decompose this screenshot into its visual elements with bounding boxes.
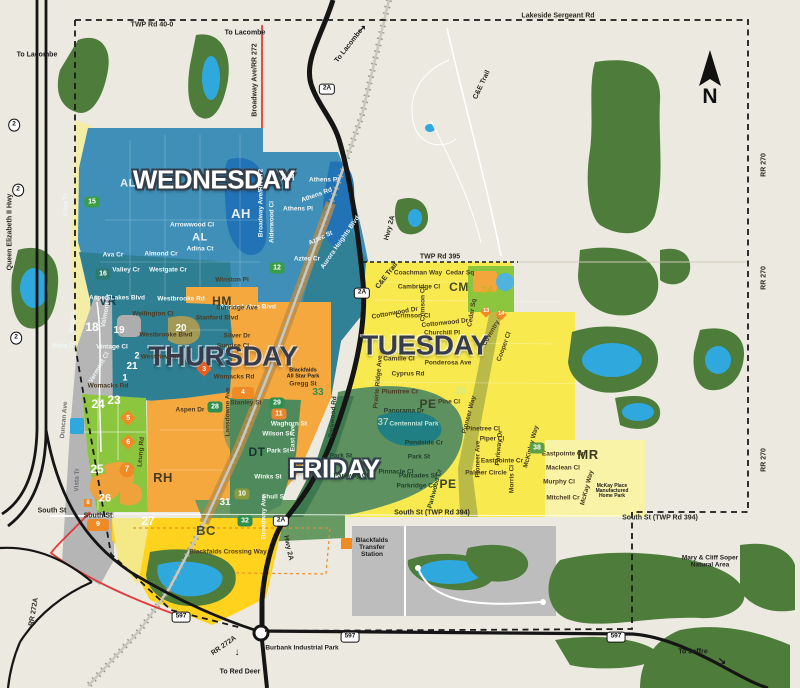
map-badge: 2: [134, 351, 139, 360]
street-label: East Ave: [291, 425, 298, 452]
map-badge: 38: [530, 443, 545, 454]
day-zone-label: WEDNESDAY: [133, 166, 295, 193]
road-label: Queen Elizabeth II Hwy: [6, 194, 13, 271]
road-label: Lakeside Sergeant Rd: [521, 12, 594, 19]
street-label: Park St: [408, 455, 430, 462]
map-badge: 25: [90, 463, 103, 475]
road-label: South St (TWP Rd 394): [394, 509, 470, 516]
street-label: McKay Way: [580, 470, 596, 506]
direction-label: To Red Deer: [220, 668, 261, 675]
street-label: Vintage Cl: [96, 345, 128, 352]
street-label: Mitchell Cr: [546, 496, 579, 503]
road-label: TWP Rd 40-0: [131, 21, 174, 28]
street-label: Womacks Rd: [88, 384, 129, 391]
highway-shield: 2A: [319, 84, 335, 95]
street-label: Wilson St: [262, 432, 292, 439]
street-label: Almond Cr: [144, 252, 177, 259]
poi-label: Blackfalds All Star Park: [287, 368, 320, 379]
highway-shield: 597: [341, 632, 360, 643]
street-label: Coachman Way: [394, 271, 442, 278]
map-badge: 27: [141, 515, 154, 527]
road-label: C&E Trail: [472, 69, 492, 100]
street-label: Aztec Cr: [294, 257, 320, 264]
street-label: Cooper Cl: [497, 331, 514, 362]
street-label: Parkwood Rd: [329, 396, 339, 438]
street-label: Eastpointe Cr: [481, 459, 523, 466]
street-label: Cyprus Rd: [392, 372, 425, 379]
map-badge: 37: [377, 418, 388, 428]
map-badge: 7: [120, 463, 135, 478]
street-label: Stanley St: [230, 401, 261, 408]
street-label: Winston Pl: [215, 278, 249, 285]
street-label: Aztec St: [308, 231, 334, 248]
street-label: Vista Tr: [74, 468, 82, 492]
street-label: Parkway Cl: [334, 474, 369, 481]
map-badge: 26: [99, 493, 111, 504]
road-label: RR 272A: [28, 597, 40, 627]
map-badge: 20: [175, 324, 186, 334]
street-label: Athens Pl: [309, 178, 339, 185]
street-label: Westbrooke Rd: [157, 297, 205, 304]
street-label: Sunrise Cl: [217, 344, 249, 351]
street-label: Morris Cl: [510, 465, 517, 493]
street-label: Wellington Cl: [132, 312, 173, 319]
area-code-label: AL: [120, 178, 136, 189]
street-label: Vermont Cl: [88, 351, 111, 384]
road-label: Hwy 2A: [282, 535, 294, 561]
map-badge: 36: [454, 387, 465, 397]
map-badge: 6: [120, 434, 136, 450]
labels-layer: WEDNESDAYTHURSDAYTUESDAYFRIDAYAHAHALALVR…: [0, 0, 800, 688]
direction-label: ↑: [35, 31, 40, 41]
street-label: Sunridge Ave: [216, 306, 257, 313]
street-label: Camille Cl: [383, 357, 414, 364]
map-badge: 12: [270, 263, 285, 274]
poi-label: Mary & Cliff Soper Natural Area: [682, 555, 738, 569]
street-label: Aurora Heights Blvd: [320, 215, 362, 270]
map-badge: 18: [85, 321, 98, 333]
street-label: Maclean Cl: [546, 466, 580, 473]
street-label: Park St: [267, 449, 289, 456]
street-label: Arrowwood Cl: [170, 223, 214, 230]
map-badge: 33: [312, 388, 323, 398]
street-label: Athens Pl: [283, 207, 313, 214]
street-label: Womacks Rd: [214, 375, 255, 382]
highway-shield: 597: [607, 632, 626, 643]
road-label: South St (TWP Rd 394): [622, 514, 698, 521]
street-label: Blackfalds Crossing Way: [189, 550, 266, 557]
highway-shield: 597: [172, 612, 191, 623]
street-label: Cedar Sq: [446, 271, 475, 278]
street-label: Ponderosa Ave: [425, 361, 472, 368]
highway-shield: 2: [8, 119, 20, 132]
street-label: Stanford Blvd: [196, 316, 239, 323]
street-label: Prairie Ridge Ave: [373, 355, 384, 409]
poi-label: McKay Place Manufactured Home Park: [596, 484, 629, 500]
street-label: Vista Cl: [52, 344, 76, 351]
street-label: Pine Cl: [438, 400, 460, 407]
highway-shield: 2A: [354, 288, 370, 299]
street-label: Westgate Cr: [149, 268, 187, 275]
map-badge: 31: [219, 498, 230, 508]
direction-label: ↘: [718, 657, 726, 667]
compass-label: N: [702, 85, 717, 109]
direction-label: To Joffre: [678, 648, 707, 655]
street-label: Vista Tr: [64, 193, 71, 216]
map-badge: 13: [480, 306, 491, 317]
map-badge: 8: [84, 499, 92, 507]
map-badge: 16: [96, 269, 111, 280]
street-label: Duncan Ave: [60, 401, 70, 439]
street-label: Pondside Cr: [405, 441, 443, 448]
map-badge: 10: [235, 489, 250, 500]
street-label: Cedar Sq: [467, 298, 479, 327]
area-code-label: PE: [439, 478, 456, 490]
road-label: Hwy 2A: [383, 215, 397, 241]
area-code-label: BC: [196, 524, 216, 538]
map-badge: 19: [113, 326, 124, 336]
street-label: Westview Cr: [141, 355, 180, 362]
direction-label: ↓: [235, 648, 240, 658]
direction-label: ↗: [358, 25, 366, 35]
street-label: Broadway Ave/RR 272: [259, 169, 266, 237]
street-label: Aspen Dr: [176, 408, 205, 415]
map-badge: 5: [120, 410, 136, 426]
street-label: Athens Rd: [301, 187, 334, 204]
street-label: Pinetree Cl: [466, 427, 500, 434]
street-label: Plumtree Cr: [382, 390, 419, 397]
highway-shield: 2A: [273, 516, 289, 527]
road-label: TWP Rd 395: [420, 253, 460, 260]
road-label: RR 270: [760, 448, 767, 472]
road-label: RR 270: [760, 266, 767, 290]
map-badge: 24: [91, 398, 104, 410]
street-label: Winks St: [254, 475, 281, 482]
street-label: Vista Tr: [69, 310, 80, 334]
area-code-label: AH: [281, 173, 295, 182]
street-label: Ava Cr: [103, 253, 124, 260]
area-code-label: CM: [449, 281, 469, 293]
street-label: Churchill Pl: [424, 331, 460, 338]
highway-shield: 2: [10, 332, 22, 345]
map-badge: 11: [272, 409, 287, 420]
street-label: Murphy Cl: [543, 480, 575, 487]
street-label: Centennial Park: [389, 422, 438, 429]
direction-label: ↑: [260, 23, 265, 33]
area-code-label: AH: [231, 207, 251, 221]
map-badge: 32: [238, 516, 253, 527]
map-badge: 4: [232, 387, 254, 399]
street-label: Parkridge Cr: [396, 484, 435, 491]
road-label: South St: [38, 507, 67, 514]
area-code-label: RH: [153, 471, 173, 485]
street-label: Panorama Dr: [384, 409, 424, 416]
street-label: Palmer Circle: [465, 471, 507, 478]
street-label: Adina Ct: [187, 247, 214, 254]
map-badge: 34: [481, 285, 493, 296]
street-label: Park St: [330, 454, 352, 461]
street-label: Broadway Ave: [262, 495, 269, 539]
map-badge: 15: [85, 197, 100, 208]
street-label: Alderwood Cl: [270, 201, 277, 243]
street-label: Valley Cr: [112, 268, 139, 275]
map-badge: 23: [107, 394, 120, 406]
road-label: RR 270: [760, 153, 767, 177]
road-label: Broadway Ave/RR 272: [251, 43, 258, 116]
area-code-label: AL: [192, 232, 208, 243]
poi-label: Blackfalds Transfer Station: [356, 538, 389, 558]
map-badge: 9: [87, 519, 109, 531]
map-badge: 29: [270, 398, 285, 409]
highway-shield: 2: [12, 184, 24, 197]
street-label: Leung Rd: [137, 437, 146, 467]
map-badge: 1: [122, 373, 127, 382]
street-label: Eastpointe Cr: [542, 452, 584, 459]
street-label: Aspen Lakes Blvd: [89, 296, 145, 303]
map-badge: 21: [126, 362, 137, 372]
area-code-label: DT: [249, 446, 266, 458]
map-badge: 28: [208, 402, 223, 413]
blackfalds-collection-schedule-map: WEDNESDAYTHURSDAYTUESDAYFRIDAYAHAHALALVR…: [0, 0, 800, 688]
street-label: Palisades St: [399, 474, 437, 481]
street-label: Silver Dr: [224, 334, 251, 341]
direction-label: To Lacombe: [17, 51, 58, 58]
poi-label: Burbank Industrial Park: [265, 646, 338, 653]
